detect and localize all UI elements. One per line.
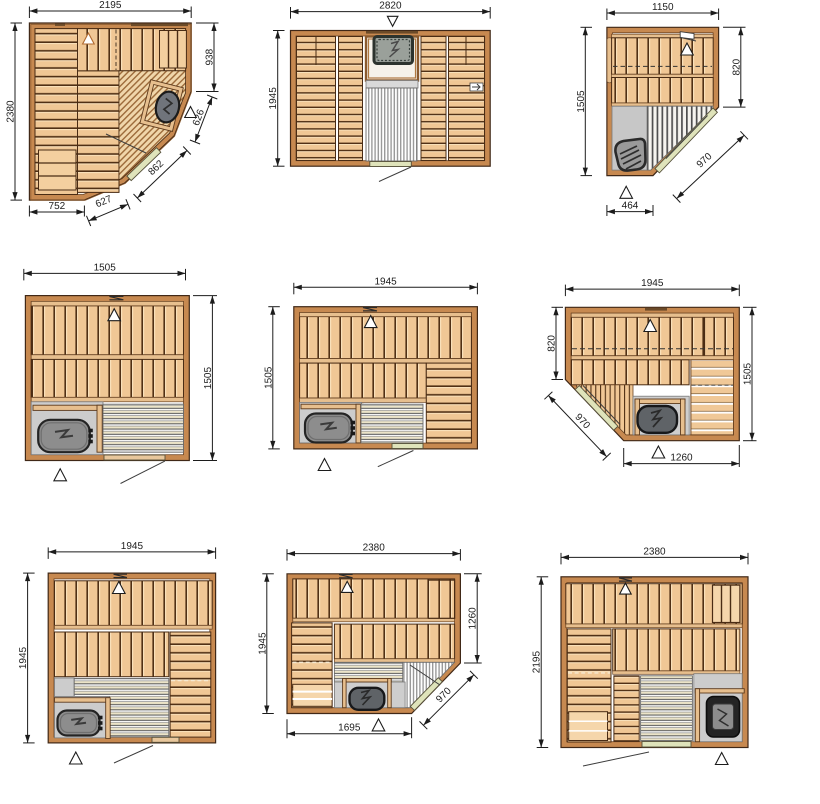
svg-text:1695: 1695 [338, 723, 361, 734]
svg-text:1150: 1150 [652, 2, 674, 13]
svg-text:1945: 1945 [641, 278, 664, 289]
svg-text:2820: 2820 [379, 1, 402, 12]
svg-text:1505: 1505 [576, 90, 587, 113]
svg-text:1260: 1260 [468, 607, 479, 630]
svg-text:1260: 1260 [670, 453, 693, 464]
svg-text:1505: 1505 [263, 366, 274, 389]
svg-text:820: 820 [731, 58, 742, 75]
svg-text:1945: 1945 [374, 276, 397, 287]
svg-text:1945: 1945 [268, 87, 279, 110]
svg-text:2380: 2380 [643, 546, 666, 557]
svg-text:820: 820 [547, 335, 558, 352]
svg-text:938: 938 [205, 48, 216, 65]
svg-text:1505: 1505 [203, 367, 214, 390]
svg-text:1505: 1505 [743, 362, 754, 385]
svg-text:1505: 1505 [94, 262, 117, 273]
svg-text:1945: 1945 [18, 646, 29, 669]
svg-text:2380: 2380 [6, 100, 17, 123]
svg-text:752: 752 [49, 201, 66, 212]
svg-text:2380: 2380 [363, 543, 386, 554]
svg-text:1945: 1945 [257, 632, 268, 655]
svg-text:464: 464 [622, 201, 639, 212]
svg-text:1945: 1945 [121, 541, 144, 552]
svg-text:2195: 2195 [532, 651, 543, 674]
svg-text:2195: 2195 [99, 0, 122, 11]
